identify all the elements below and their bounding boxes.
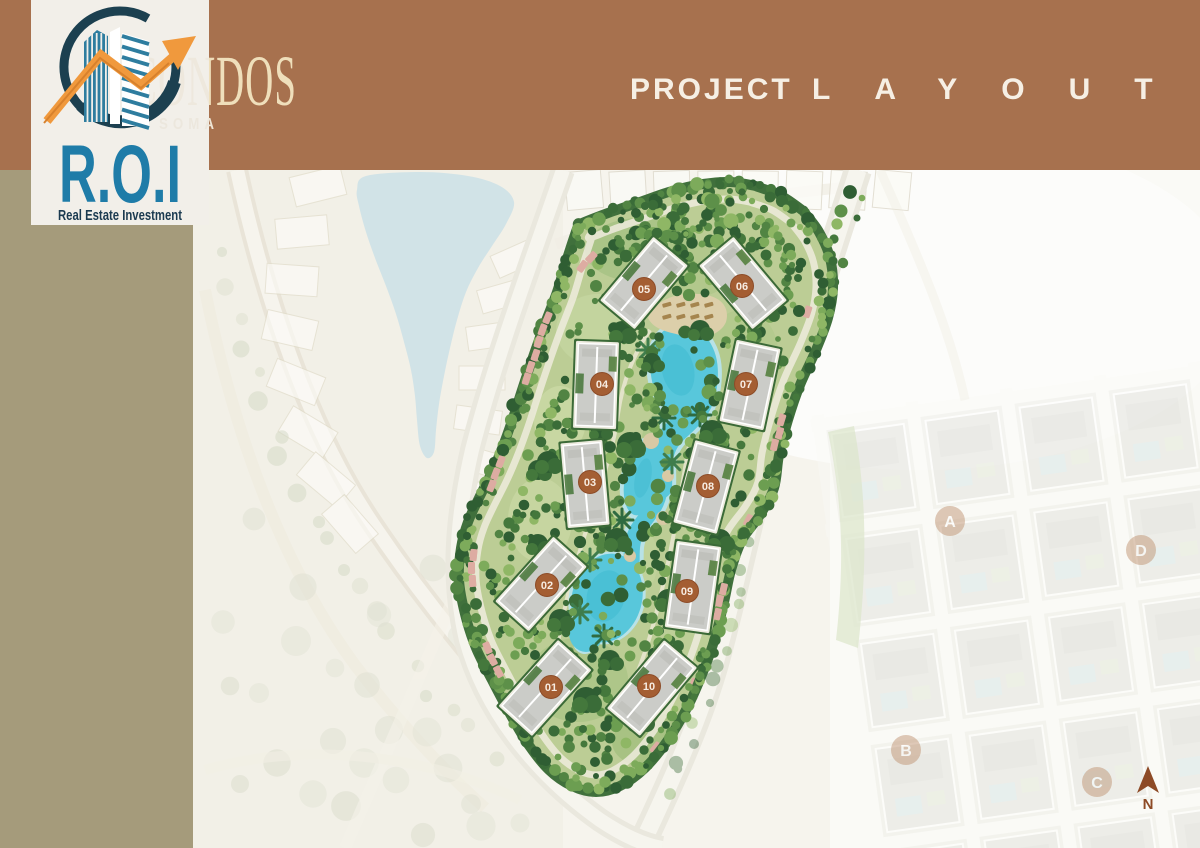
svg-text:D: D (1135, 543, 1147, 560)
svg-text:Real Estate Investment: Real Estate Investment (58, 208, 182, 224)
svg-text:04: 04 (596, 379, 609, 391)
svg-text:06: 06 (736, 281, 748, 293)
svg-text:03: 03 (584, 477, 596, 489)
svg-text:05: 05 (638, 284, 650, 296)
svg-text:B: B (900, 743, 912, 760)
svg-text:C: C (1091, 775, 1103, 792)
svg-text:01: 01 (545, 682, 557, 694)
svg-text:A: A (944, 514, 956, 531)
svg-text:R.O.I: R.O.I (59, 130, 181, 220)
svg-text:02: 02 (541, 580, 553, 592)
svg-text:09: 09 (681, 586, 693, 598)
svg-text:N: N (1143, 796, 1154, 813)
svg-text:08: 08 (702, 481, 714, 493)
svg-text:10: 10 (643, 681, 655, 693)
svg-text:07: 07 (740, 379, 752, 391)
